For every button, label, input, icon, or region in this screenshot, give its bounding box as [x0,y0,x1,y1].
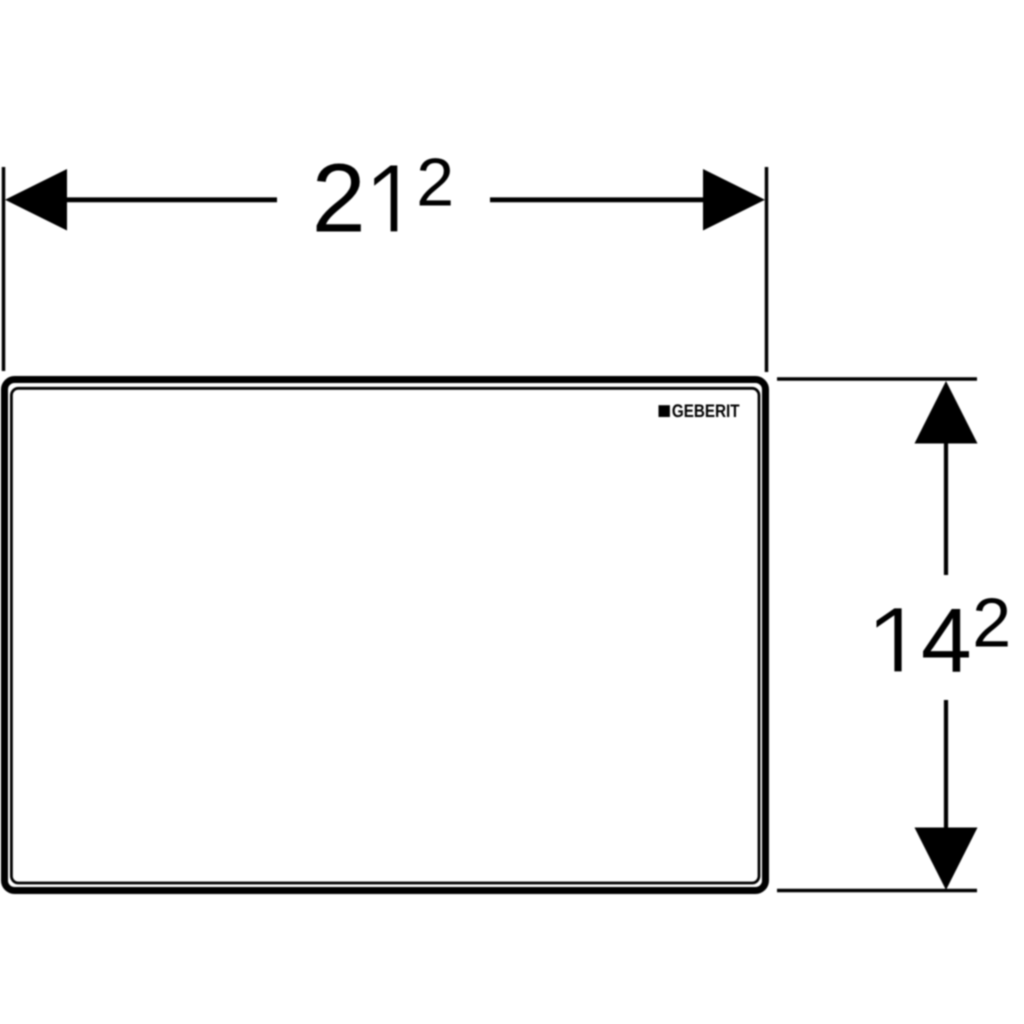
svg-text:2: 2 [416,144,454,220]
svg-text:2: 2 [972,584,1011,662]
svg-text:4: 4 [921,590,972,691]
svg-text:2: 2 [312,143,366,252]
